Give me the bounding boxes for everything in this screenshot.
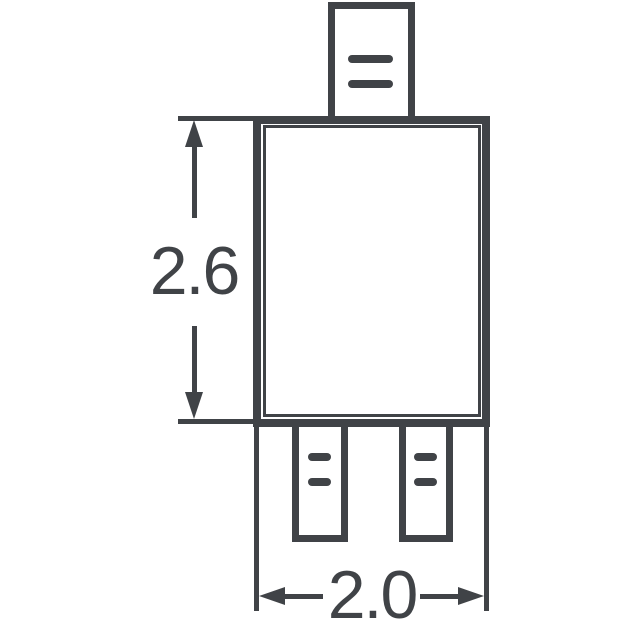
down-arrowhead-icon <box>185 392 203 419</box>
horizontal-dim-extension-line-left <box>254 427 259 611</box>
horizontal-dim-extension-line-right <box>484 427 489 611</box>
bottom-lead-left-marking-dash <box>308 478 331 486</box>
right-arrowhead-icon <box>458 587 484 605</box>
bottom-lead-left-marking-dash <box>308 453 331 461</box>
package-body-inner-outline <box>263 125 481 417</box>
top-lead-marking-dash <box>348 80 393 88</box>
bottom-lead-right-marking-dash <box>414 453 437 461</box>
vertical-dim-line-lower-segment <box>192 326 197 396</box>
vertical-dim-extension-line-bottom <box>178 419 257 424</box>
bottom-lead-right-marking-dash <box>414 478 437 486</box>
vertical-dimension-label: 2.6 <box>124 237 264 305</box>
horizontal-dim-line-right-segment <box>420 594 459 599</box>
top-lead-marking-dash <box>348 55 393 63</box>
up-arrowhead-icon <box>185 120 203 147</box>
package-dimension-drawing: 2.6 2.0 <box>0 0 640 640</box>
vertical-dim-line-upper-segment <box>192 146 197 218</box>
left-arrowhead-icon <box>259 587 285 605</box>
